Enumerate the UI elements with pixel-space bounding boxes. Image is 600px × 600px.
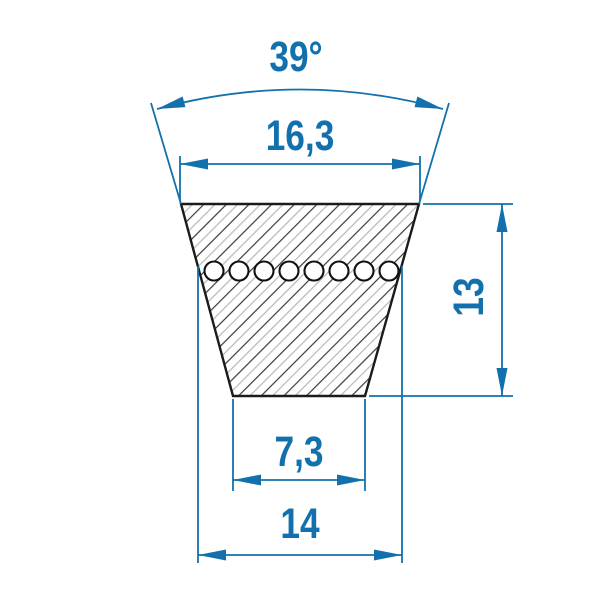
cord-circle <box>330 262 349 281</box>
cord-circle <box>380 262 399 281</box>
angle-label: 39° <box>269 33 322 81</box>
angle-dimension-arc <box>157 90 443 110</box>
arrowhead-right <box>374 550 402 561</box>
arrowhead-right <box>337 475 365 486</box>
arrowhead-top <box>497 204 508 232</box>
datum-width-label: 14 <box>280 500 319 548</box>
dimension-top-width <box>180 156 420 201</box>
belt-cross-section <box>181 204 419 396</box>
bottom-width-label: 7,3 <box>274 428 323 476</box>
arrowhead-left <box>233 475 261 486</box>
arrowhead-left <box>180 159 208 170</box>
angle-extension-line-right <box>419 103 449 204</box>
cord-circle <box>305 262 324 281</box>
arrowhead-left <box>198 550 226 561</box>
cord-circle <box>205 262 224 281</box>
drawing-canvas: 39° 16,3 13 7,3 14 <box>0 0 600 600</box>
arrowhead-right <box>392 159 420 170</box>
arrowhead-left <box>156 96 186 114</box>
top-width-label: 16,3 <box>266 112 335 160</box>
height-label: 13 <box>445 277 493 316</box>
vbelt-technical-drawing: 39° 16,3 13 7,3 14 <box>0 0 600 600</box>
cord-circle <box>280 262 299 281</box>
angle-extension-line-left <box>151 103 181 204</box>
cord-circle <box>230 262 249 281</box>
cord-circle <box>355 262 374 281</box>
cord-circle <box>255 262 274 281</box>
arrowhead-right <box>415 96 445 114</box>
belt-body-hatched <box>181 204 419 396</box>
arrowhead-bottom <box>497 368 508 396</box>
